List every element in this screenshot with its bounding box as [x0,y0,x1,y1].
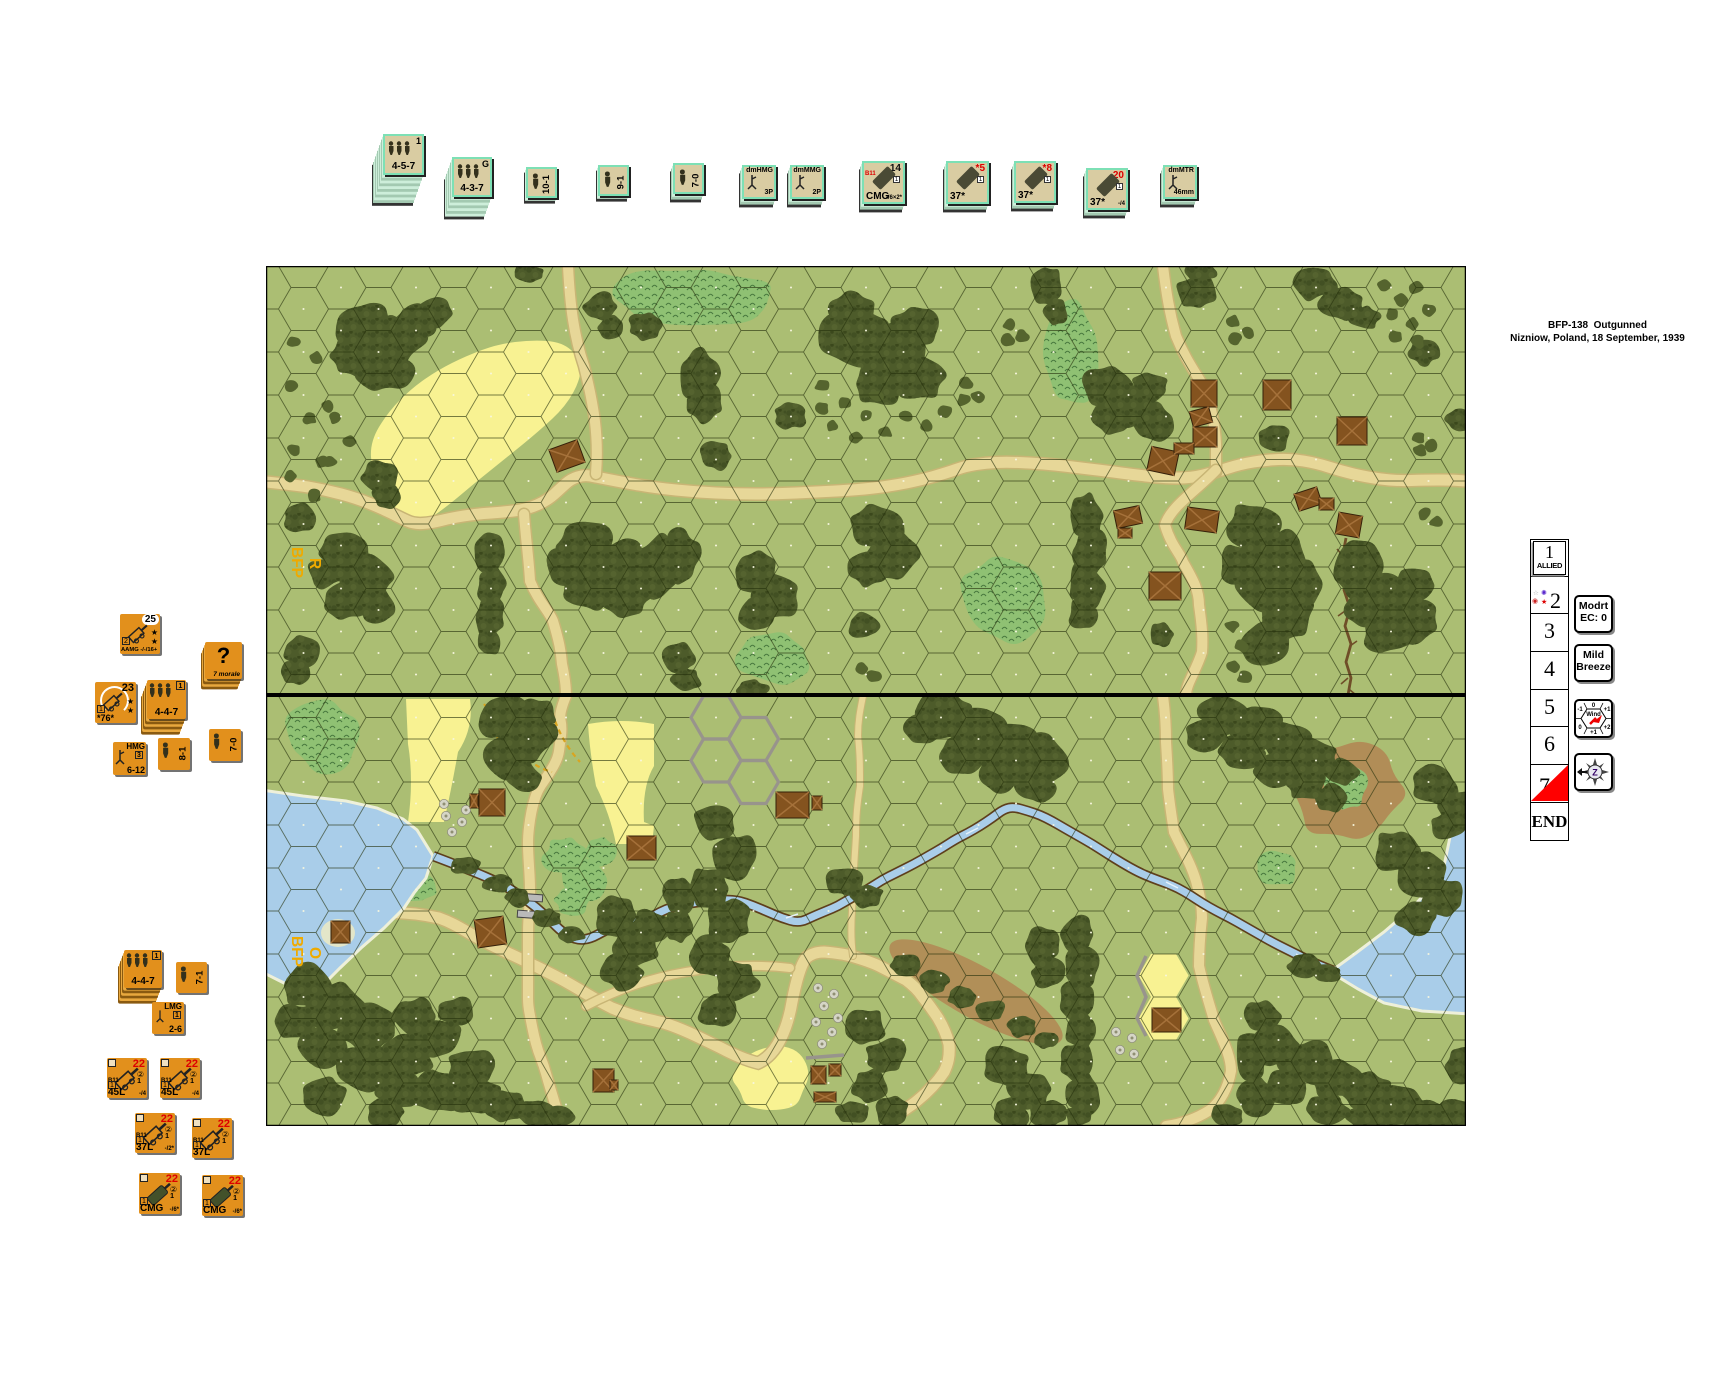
svg-text:O: O [306,947,323,959]
svg-text:0: 0 [1578,725,1582,731]
svg-text:-1: -1 [1577,707,1583,713]
svg-text:R: R [306,558,323,569]
svg-text:Wind: Wind [1586,712,1601,718]
svg-text:+1: +1 [1590,730,1598,736]
svg-text:+2: +2 [1604,725,1611,731]
svg-text:BFP: BFP [288,547,305,578]
svg-text:+1: +1 [1604,707,1611,713]
svg-text:0: 0 [1592,703,1596,709]
svg-text:Z: Z [1592,768,1598,778]
svg-text:BFP: BFP [288,936,305,967]
